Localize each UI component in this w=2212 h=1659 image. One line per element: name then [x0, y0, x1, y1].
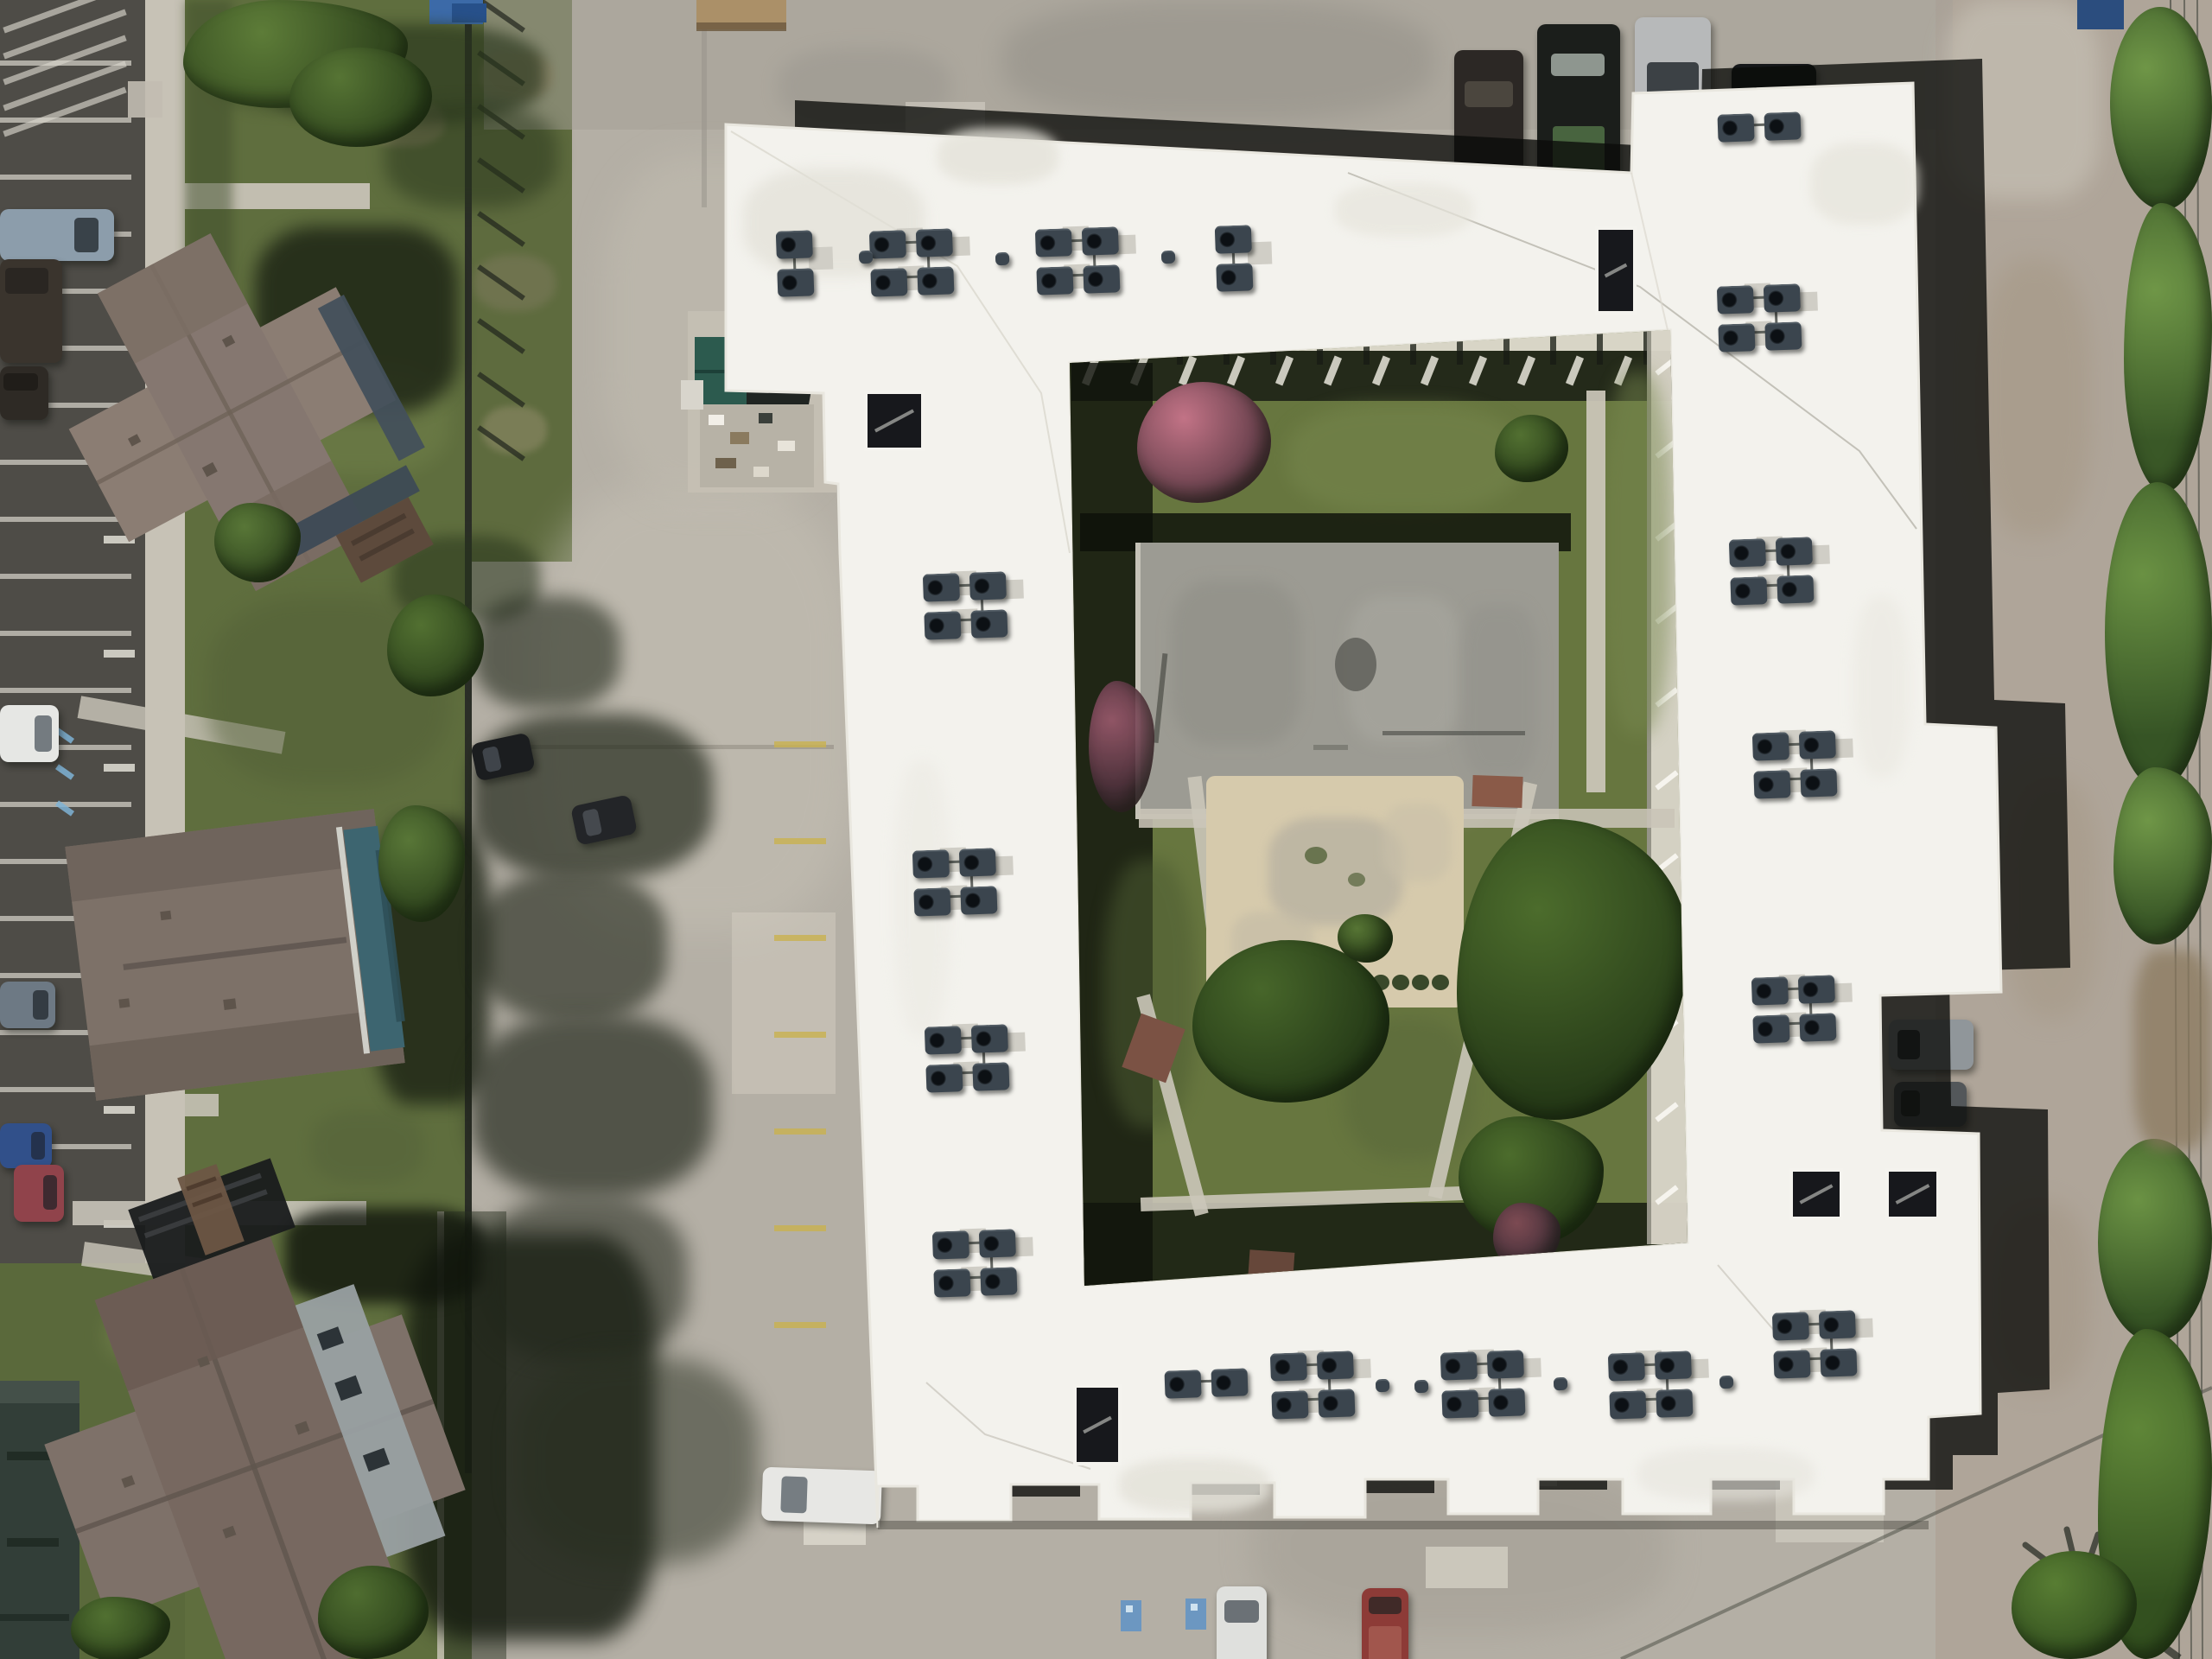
apt-window-band	[0, 1614, 69, 1621]
hvac-unit	[1729, 538, 1766, 567]
yellow-stall-stub	[774, 1128, 826, 1135]
hvac-unit	[1719, 1376, 1734, 1389]
car-black-sedan-glass	[582, 808, 602, 836]
hvac-fan	[976, 1031, 992, 1047]
roof-mottle	[1810, 143, 1918, 225]
yellow-stall-stub	[774, 1322, 826, 1328]
concrete-mottle	[536, 484, 855, 933]
hvac-fan	[929, 618, 945, 634]
hvac-unit	[916, 228, 953, 257]
tree	[378, 805, 465, 922]
hvac-unit	[1777, 575, 1814, 603]
apt-building	[0, 1381, 79, 1659]
hvac-fan	[1733, 545, 1750, 562]
roof-mottle	[1335, 183, 1473, 237]
tree-shadow-concrete	[517, 1357, 759, 1564]
hvac-unit	[1440, 1351, 1478, 1380]
fence-post-shadow	[477, 157, 525, 194]
debris	[753, 467, 769, 477]
parking-stripe	[0, 346, 131, 351]
top-concrete-shade	[484, 0, 1953, 130]
house-mid-left-part	[223, 998, 236, 1010]
car-notch-gray	[1894, 1082, 1967, 1127]
white-patch	[732, 912, 836, 1094]
hvac-fan	[1769, 118, 1785, 135]
skylight-glint	[1800, 1184, 1834, 1204]
tree	[2124, 203, 2212, 493]
parking-stripe	[0, 60, 131, 66]
hvac-unit	[1376, 1379, 1390, 1393]
roof-hatch-skylight	[864, 391, 925, 451]
hvac-fan	[918, 894, 935, 911]
handicap-symbol	[1185, 1599, 1206, 1630]
fence-post-shadow	[477, 264, 525, 301]
gravel-brown	[2005, 778, 2100, 1020]
hvac-fan	[1274, 1359, 1291, 1376]
car-black-pickup-glass	[1551, 54, 1605, 76]
grass-texture	[311, 1110, 423, 1184]
hvac-fan	[985, 1274, 1001, 1290]
hvac-unit	[1752, 1014, 1789, 1043]
expansion-joint	[702, 0, 707, 207]
car-red-glass	[43, 1175, 57, 1210]
hvac-unit	[777, 268, 814, 296]
skylight-glint	[1896, 1184, 1930, 1205]
hvac-unit	[972, 1062, 1009, 1090]
hvac-fan	[1782, 582, 1798, 598]
hvac-fan	[1735, 583, 1751, 600]
hvac-fan	[1777, 1319, 1793, 1335]
hvac-fan	[1802, 982, 1819, 998]
hvac-fan	[922, 273, 938, 289]
hvac-unit	[933, 1268, 970, 1297]
tree-shadow-concrete	[471, 1015, 713, 1197]
car-black-pickup	[1537, 24, 1620, 197]
hvac-fan	[1088, 271, 1104, 288]
expansion-joint	[471, 745, 834, 749]
debris	[730, 432, 749, 444]
hvac-unit	[970, 609, 1007, 638]
car-blue-silver	[0, 209, 114, 261]
tree	[2012, 1551, 2137, 1659]
hvac-unit	[1609, 1390, 1646, 1419]
hvac-unit	[1772, 1312, 1809, 1340]
hvac-fan	[1219, 232, 1236, 248]
dumpster-ramp	[725, 327, 820, 416]
tree	[289, 48, 432, 147]
walkway	[145, 1094, 219, 1116]
hvac-fan	[920, 235, 937, 251]
pergola-beam	[1130, 325, 1136, 365]
hvac-unit	[995, 252, 1010, 266]
parking-stripe	[0, 802, 131, 807]
hvac-unit	[980, 1267, 1017, 1295]
hvac-fan	[963, 855, 980, 871]
hvac-unit	[1270, 1352, 1307, 1381]
parking-stripe	[0, 175, 131, 180]
cart	[681, 380, 703, 410]
hvac-fan	[1493, 1395, 1510, 1411]
car-white-sedan-glass	[780, 1476, 807, 1513]
debris-bin-east	[1837, 296, 1885, 416]
hvac-fan	[1758, 1021, 1774, 1038]
hvac-fan	[977, 1069, 994, 1085]
hvac-fan	[1757, 739, 1773, 755]
apt-roofline	[0, 1381, 79, 1403]
hvac-unit	[1318, 1389, 1355, 1417]
car-white-sedan	[1217, 1586, 1267, 1659]
fence-post-shadow	[477, 104, 525, 140]
tree	[2110, 7, 2212, 210]
debris	[778, 441, 795, 451]
bare-dirt	[482, 406, 547, 454]
hvac-unit	[1317, 1351, 1354, 1379]
concrete-mottle	[1944, 0, 2100, 199]
hvac-unit	[912, 849, 950, 878]
car-red-pickup-detail	[1369, 1626, 1402, 1659]
dumpster-pad	[688, 311, 836, 493]
concrete-mottle	[1253, 1460, 1668, 1633]
hvac-unit	[924, 611, 961, 639]
blue-tarp	[429, 0, 483, 24]
fence-post-shadow	[477, 318, 525, 354]
hvac-unit	[1718, 323, 1755, 352]
hvac-unit	[1216, 263, 1253, 291]
car-bluegray-glass	[33, 990, 48, 1020]
parking-stripe	[0, 631, 131, 636]
hvac-unit	[1414, 1380, 1429, 1394]
roof-hatch-skylight	[1789, 1168, 1843, 1220]
hvac-unit	[1718, 113, 1755, 142]
white-patch	[906, 102, 985, 147]
yellow-stall-stub	[774, 935, 826, 941]
fence-post-shadow	[477, 211, 525, 247]
hvac-unit	[776, 230, 813, 258]
concrete-mottle	[605, 156, 838, 501]
dumpster-lid-line	[695, 370, 747, 373]
tree-shadow-concrete	[477, 873, 667, 1020]
hvac-unit	[1776, 537, 1813, 565]
blue-accessible-dash	[55, 800, 74, 816]
debris	[715, 458, 736, 468]
hvac-fan	[1446, 1396, 1463, 1413]
blue-accessible-dash	[55, 764, 74, 779]
hvac-unit	[870, 268, 907, 296]
parking-stripe	[0, 118, 131, 123]
white-patch	[804, 1514, 866, 1545]
yellow-stall-stub	[774, 1225, 826, 1231]
car-bluegray	[0, 982, 55, 1028]
hvac-unit	[1608, 1352, 1645, 1381]
hvac-unit	[923, 573, 960, 601]
hatch-stripe	[3, 35, 126, 86]
hvac-unit	[959, 848, 996, 876]
gravel-brown	[1987, 1201, 2091, 1391]
grass-fence-strip	[470, 0, 572, 562]
hvac-fan	[965, 893, 982, 909]
car-blue-silver-glass	[74, 218, 99, 252]
hvac-fan	[1491, 1357, 1508, 1373]
hvac-fan	[1323, 1395, 1339, 1412]
skylight-glint	[1083, 1416, 1112, 1433]
car-dark-suv	[1454, 50, 1523, 197]
hvac-unit	[1798, 975, 1835, 1003]
fence-post-shadow	[477, 50, 525, 86]
fence-post-shadow	[477, 372, 525, 408]
wheel-stop	[104, 1106, 135, 1114]
hvac-unit	[913, 887, 950, 916]
car-black-sedan	[470, 732, 536, 781]
hvac-unit	[1819, 1310, 1856, 1338]
hvac-fan	[974, 578, 990, 594]
roof-mottle	[938, 128, 1058, 184]
hvac-unit	[932, 1230, 969, 1259]
tan-shed	[696, 0, 786, 29]
hvac-unit	[1764, 321, 1802, 350]
hvac-unit	[1488, 1388, 1525, 1416]
car-dark-suv-glass	[1465, 81, 1513, 107]
walkway	[181, 183, 370, 209]
hvac-fan	[1445, 1358, 1461, 1375]
hatch-stripe	[3, 0, 126, 33]
tree	[318, 1566, 429, 1659]
parking-stripe	[0, 232, 131, 237]
hvac-fan	[938, 1275, 955, 1292]
hvac-fan	[1758, 777, 1775, 793]
hvac-unit	[1083, 264, 1120, 293]
walkway	[78, 696, 286, 753]
hvac-unit	[960, 886, 997, 914]
car-black-pickup-detail	[1553, 126, 1605, 176]
debris	[709, 415, 724, 425]
hvac-unit	[859, 251, 874, 264]
blue-bin	[2077, 0, 2124, 29]
tree-shadow-concrete	[471, 714, 713, 878]
hvac-fan	[874, 237, 890, 253]
hvac-fan	[1780, 543, 1796, 560]
car-notch-silver	[1889, 1020, 1974, 1070]
gravel-brown	[1979, 259, 2091, 536]
car-notch-silver-glass	[1897, 1030, 1920, 1059]
car-red	[14, 1165, 64, 1222]
tan-shed-edge	[696, 22, 786, 31]
hvac-fan	[1039, 235, 1056, 251]
hvac-fan	[1768, 290, 1784, 307]
dirt-gap-veg	[2134, 950, 2212, 1149]
hvac-unit	[1773, 1350, 1810, 1378]
hvac-fan	[1756, 983, 1772, 1000]
red-bush	[1493, 1203, 1560, 1270]
hvac-unit	[1799, 730, 1836, 759]
aerial-drone-photo-apartment-complex	[0, 0, 2212, 1659]
hvac-unit	[1035, 228, 1072, 257]
car-black-sedan	[570, 794, 638, 846]
handicap-dot	[1126, 1605, 1133, 1612]
parking-stripe	[0, 1144, 131, 1149]
yellow-stall-stub	[774, 1032, 826, 1038]
roof-mottle	[1853, 596, 1910, 778]
parking-stripe	[0, 574, 131, 579]
roof-hatch-skylight	[1885, 1168, 1940, 1220]
hvac-fan	[875, 275, 892, 291]
concrete-mottle	[778, 48, 950, 125]
roof-hatch-skylight	[1595, 226, 1637, 315]
hvac-unit	[1820, 1348, 1857, 1376]
wheel-stop	[104, 650, 135, 658]
hvac-fan	[1778, 1357, 1795, 1373]
hvac-fan	[983, 1236, 1000, 1252]
hvac-unit	[1211, 1368, 1248, 1396]
roof-seam	[1631, 173, 1668, 330]
pergola-beam	[1084, 325, 1090, 365]
skylight-glint	[874, 409, 914, 432]
tree	[71, 1597, 170, 1659]
hvac-fan	[782, 275, 798, 291]
hvac-fan	[1723, 330, 1739, 346]
hvac-unit	[917, 266, 954, 295]
wheel-stop	[104, 1220, 135, 1228]
hvac-fan	[780, 237, 797, 253]
bare-dirt	[474, 255, 556, 311]
hvac-fan	[1804, 1020, 1821, 1036]
car-red-pickup-glass	[1369, 1597, 1402, 1614]
bin-teal-end	[1842, 404, 1877, 418]
hvac-unit	[979, 1229, 1016, 1257]
hvac-unit	[1764, 111, 1801, 140]
debris	[1849, 328, 1865, 337]
apt-window-band	[7, 1538, 59, 1547]
deck-shadow	[285, 1208, 484, 1303]
hvac-unit	[1655, 1351, 1692, 1379]
hvac-unit	[1799, 1013, 1836, 1041]
parking-stripe	[0, 517, 131, 522]
car-white	[0, 705, 59, 762]
hvac-unit	[1215, 225, 1252, 253]
hvac-fan	[1221, 270, 1237, 286]
hvac-fan	[1803, 737, 1820, 753]
hvac-unit	[969, 571, 1007, 600]
yellow-stall-stub	[774, 838, 826, 844]
roof-mottle	[743, 168, 925, 276]
hvac-fan	[1086, 233, 1103, 250]
tree-shadow-concrete	[474, 596, 620, 709]
bare-dirt	[480, 52, 554, 99]
hvac-unit	[1441, 1389, 1478, 1418]
house-mid-left-part	[160, 911, 171, 920]
car-dark-brown-glass	[5, 268, 48, 294]
hvac-unit	[1751, 976, 1789, 1005]
hvac-fan	[1805, 775, 1821, 791]
dumpster-green	[695, 337, 747, 406]
car-silver-suv-glass	[1647, 62, 1699, 100]
roof-seam	[731, 131, 1070, 553]
fence-shadow-bottom	[444, 1211, 506, 1659]
hvac-fan	[976, 616, 992, 632]
fence-post-shadow	[477, 0, 525, 33]
hvac-fan	[1169, 1376, 1185, 1393]
house-mid-left-part	[118, 998, 130, 1007]
hatch-stripe	[3, 10, 126, 60]
hvac-unit	[1161, 251, 1176, 264]
hvac-fan	[1659, 1357, 1675, 1374]
hvac-fan	[1661, 1395, 1677, 1412]
car-silver-suv-detail	[1647, 130, 1699, 171]
concrete-mottle	[1002, 0, 1434, 121]
bush	[1338, 914, 1393, 963]
roof-mottle	[1637, 1447, 1815, 1501]
hvac-unit	[1800, 768, 1837, 797]
tree	[2098, 1139, 2212, 1342]
fence	[465, 0, 472, 1473]
hvac-unit	[1554, 1377, 1568, 1391]
hvac-fan	[1216, 1375, 1232, 1391]
blue-tarp	[452, 3, 486, 22]
hvac-unit	[1764, 283, 1801, 312]
debris	[759, 413, 772, 423]
blue-accessible-dash	[55, 728, 74, 743]
car-dark-brown	[0, 259, 62, 363]
car-blue	[0, 1123, 52, 1168]
hvac-fan	[937, 1237, 953, 1254]
hvac-fan	[1721, 292, 1738, 308]
car-white-sedan	[761, 1467, 882, 1525]
hvac-unit	[1656, 1389, 1693, 1417]
hvac-fan	[1825, 1355, 1841, 1371]
hvac-unit	[1082, 226, 1119, 255]
hvac-unit	[1487, 1350, 1524, 1378]
hvac-unit	[1717, 285, 1754, 314]
hvac-fan	[929, 1033, 945, 1049]
hvac-unit	[1752, 732, 1789, 760]
hvac-unit	[1730, 576, 1767, 605]
hvac-fan	[1823, 1317, 1840, 1333]
roof-seam	[926, 1382, 1090, 1469]
debris-box	[700, 404, 814, 487]
yellow-stall-stub	[774, 741, 826, 747]
white-patch	[1426, 1547, 1508, 1588]
skylight-glint	[1605, 264, 1628, 278]
hvac-fan	[927, 580, 944, 596]
hvac-fan	[1321, 1357, 1338, 1374]
parking-stripe	[0, 688, 131, 693]
hvac-unit	[869, 230, 906, 258]
tree	[2105, 482, 2212, 789]
car-dark-brown	[0, 366, 48, 420]
hvac-fan	[1722, 120, 1738, 137]
hvac-unit	[1036, 266, 1073, 295]
hvac-unit	[971, 1024, 1008, 1052]
white-patch	[1505, 1459, 1557, 1486]
tree-shadow-concrete	[480, 1197, 688, 1361]
car-white-glass	[35, 715, 52, 752]
fence-post-shadow	[477, 425, 525, 461]
roof-hatch-skylight	[1073, 1384, 1122, 1465]
hvac-fan	[1041, 273, 1058, 289]
wheel-stop	[104, 764, 135, 772]
car-white-sedan-glass	[1224, 1600, 1259, 1623]
hvac-fan	[1614, 1397, 1630, 1414]
tree	[387, 594, 484, 696]
car-notch-gray-glass	[1901, 1090, 1920, 1116]
parking-stripe	[0, 745, 131, 750]
debris	[1844, 363, 1858, 372]
hvac-unit	[1753, 770, 1790, 798]
hvac-fan	[1612, 1359, 1629, 1376]
hatch-stripe	[3, 61, 126, 111]
utility-pad	[128, 81, 162, 118]
handicap-symbol	[1121, 1600, 1141, 1631]
car-red-pickup	[1362, 1588, 1408, 1659]
